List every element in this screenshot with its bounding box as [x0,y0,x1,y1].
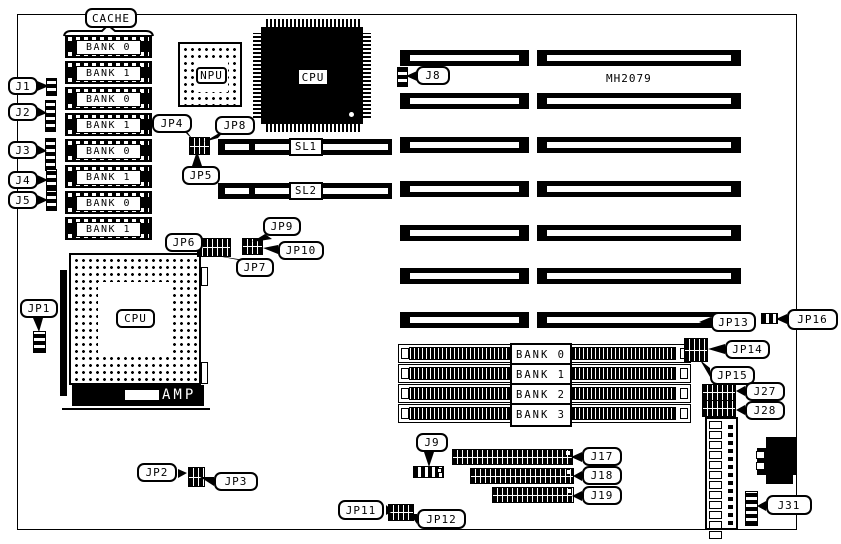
callout-jp9: JP9 [263,217,301,236]
callout-j3: J3 [8,141,38,159]
callout-j17: J17 [582,447,622,466]
callout-jp3: JP3 [214,472,258,491]
callout-j1: J1 [8,77,38,95]
callout-jp14: JP14 [725,340,770,359]
callout-j9: J9 [416,433,448,452]
callout-jp6: JP6 [165,233,203,252]
callout-jp7: JP7 [236,258,274,277]
callout-cache: CACHE [85,8,137,28]
callout-jp11: JP11 [338,500,384,520]
callout-j2: J2 [8,103,38,121]
callout-j5: J5 [8,191,38,209]
callout-jp13: JP13 [711,312,756,332]
callout-j4: J4 [8,171,38,189]
callout-jp1: JP1 [20,299,58,318]
callout-jp8: JP8 [215,116,255,135]
callout-j8: J8 [416,66,450,85]
callout-j27: J27 [745,382,785,401]
callout-jp5: JP5 [182,166,220,185]
callout-j19: J19 [582,486,622,505]
callout-jp12: JP12 [417,509,466,529]
callout-jp16: JP16 [787,309,838,330]
motherboard-diagram: BANK 0 BANK 1 BANK 0 BANK 1 BANK 0 BANK … [0,0,841,544]
callout-j31: J31 [766,495,812,515]
callout-j28: J28 [745,401,785,420]
callout-j18: J18 [582,466,622,485]
callout-jp10: JP10 [278,241,324,260]
callout-jp4: JP4 [152,114,192,133]
callout-jp2: JP2 [137,463,177,482]
